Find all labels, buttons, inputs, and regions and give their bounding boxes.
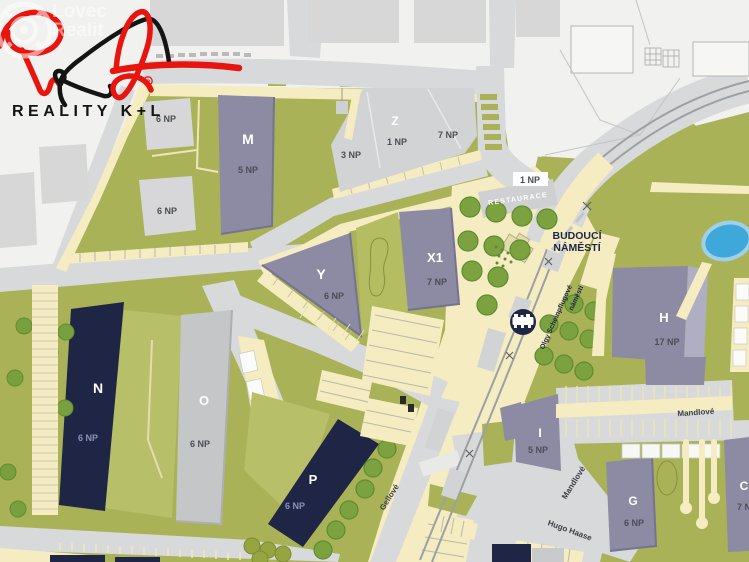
- svg-text:C: C: [740, 479, 749, 493]
- svg-text:R: R: [146, 80, 151, 86]
- svg-text:G: G: [628, 494, 637, 508]
- svg-text:5 NP: 5 NP: [238, 165, 258, 175]
- svg-text:M: M: [242, 131, 254, 147]
- svg-text:7 NP: 7 NP: [438, 130, 458, 140]
- svg-text:6 NP: 6 NP: [78, 433, 98, 443]
- svg-text:17 NP: 17 NP: [654, 337, 679, 347]
- svg-text:I: I: [538, 426, 541, 440]
- svg-text:1 NP: 1 NP: [520, 175, 540, 185]
- svg-text:1 NP: 1 NP: [387, 137, 407, 147]
- svg-text:Y: Y: [316, 266, 326, 282]
- svg-text:N: N: [93, 380, 103, 396]
- svg-text:Lovec: Lovec: [52, 1, 107, 22]
- svg-text:O: O: [199, 393, 209, 408]
- svg-text:6 NP: 6 NP: [324, 291, 344, 301]
- svg-text:Realit: Realit: [52, 20, 104, 41]
- svg-text:7 NP: 7 NP: [427, 277, 447, 287]
- svg-text:H: H: [659, 310, 668, 325]
- svg-text:6 NP: 6 NP: [190, 439, 210, 449]
- svg-text:6 NP: 6 NP: [285, 501, 305, 511]
- svg-text:NÁMĚSTÍ: NÁMĚSTÍ: [553, 241, 601, 254]
- svg-text:BUDOUCÍ: BUDOUCÍ: [553, 229, 603, 242]
- svg-text:X1: X1: [427, 250, 443, 265]
- svg-text:P: P: [309, 472, 318, 487]
- svg-text:6 NP: 6 NP: [157, 206, 177, 216]
- svg-text:REALITY K+L: REALITY K+L: [12, 103, 165, 120]
- svg-text:6 NP: 6 NP: [624, 518, 644, 528]
- svg-text:7 N: 7 N: [737, 502, 749, 512]
- svg-text:5 NP: 5 NP: [528, 445, 548, 455]
- svg-text:Z: Z: [391, 114, 398, 128]
- svg-text:3 NP: 3 NP: [341, 150, 361, 160]
